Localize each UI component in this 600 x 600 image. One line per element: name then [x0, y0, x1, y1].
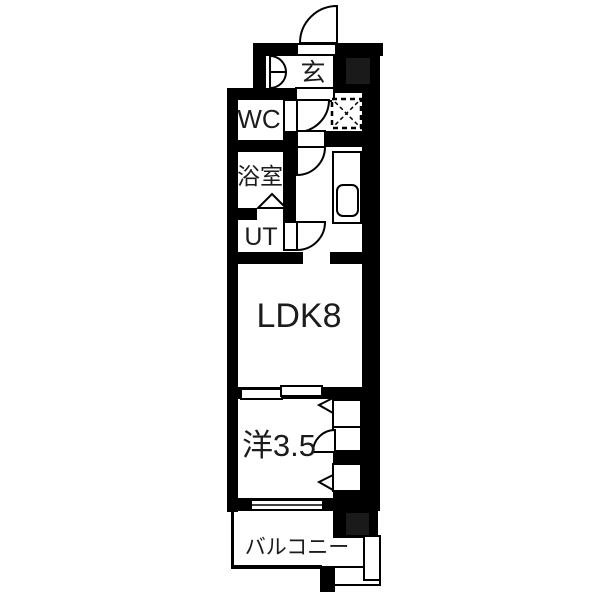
utility-label: UT	[244, 223, 277, 251]
pipe-shaft-lower-icon	[346, 513, 369, 535]
window-icon	[251, 500, 323, 510]
entrance-label: 玄	[300, 59, 325, 87]
sliding-panel-left	[241, 389, 282, 399]
washing-machine-icon	[332, 99, 361, 128]
closet-door-marker-bottom-icon	[319, 475, 333, 490]
shoe-cabinet-flap-bottom	[270, 72, 286, 88]
wall-wc-bath-divider	[227, 140, 297, 152]
balcony-corner-block	[320, 566, 335, 592]
closet-icons	[313, 398, 361, 491]
western-room-label: 洋3.5	[242, 428, 316, 463]
wc-door-icon	[284, 100, 329, 132]
living-label: LDK8	[256, 297, 341, 335]
floorplan-canvas: 玄 WC 浴室 UT LDK8 洋3.5 バルコニー	[0, 0, 600, 600]
railing-bottom	[231, 565, 322, 569]
wall-bath-ut-left	[227, 208, 257, 220]
bathroom-label: 浴室	[237, 163, 283, 189]
pipe-shaft-icon	[346, 58, 370, 84]
kitchen-sink-icon	[337, 185, 358, 216]
ldk-door-arc	[297, 147, 325, 175]
entrance-door-arc	[300, 6, 337, 43]
closet-upper	[333, 400, 361, 451]
entrance-door-leaf	[297, 44, 336, 55]
wall-kitchen-stub	[330, 252, 362, 264]
closet-door-marker-top-icon	[319, 398, 333, 413]
wc-door-arc	[297, 100, 329, 132]
utility-door-arc	[297, 222, 325, 250]
shoe-cabinet-flap-top	[270, 56, 286, 72]
railing-right	[364, 536, 380, 580]
floorplan-page: 玄 WC 浴室 UT LDK8 洋3.5 バルコニー	[0, 0, 600, 600]
shoe-cabinet-icon	[270, 56, 286, 88]
utility-door-icon	[284, 222, 325, 250]
wall-kitchen-niche	[325, 131, 362, 147]
ldk-door-leaf	[297, 131, 325, 147]
sliding-panel-right	[281, 386, 322, 396]
utility-door-leaf	[284, 222, 297, 250]
railing-left	[231, 511, 234, 569]
closet-lower	[333, 464, 361, 491]
wc-door-leaf	[284, 100, 297, 132]
entrance-door-icon	[297, 6, 337, 55]
kitchen-counter-icon	[333, 152, 361, 223]
balcony-label: バルコニー	[245, 536, 350, 559]
wall-right-main	[362, 43, 380, 511]
bathroom-door-icon	[258, 194, 286, 208]
closet-door-arc-icon	[313, 430, 335, 452]
wc-label: WC	[237, 104, 280, 134]
wall-bath-ut-right	[285, 208, 296, 220]
wall-closet-separator	[333, 451, 362, 464]
wall-ut-bottom	[227, 252, 303, 264]
ldk-door-icon	[297, 131, 325, 175]
